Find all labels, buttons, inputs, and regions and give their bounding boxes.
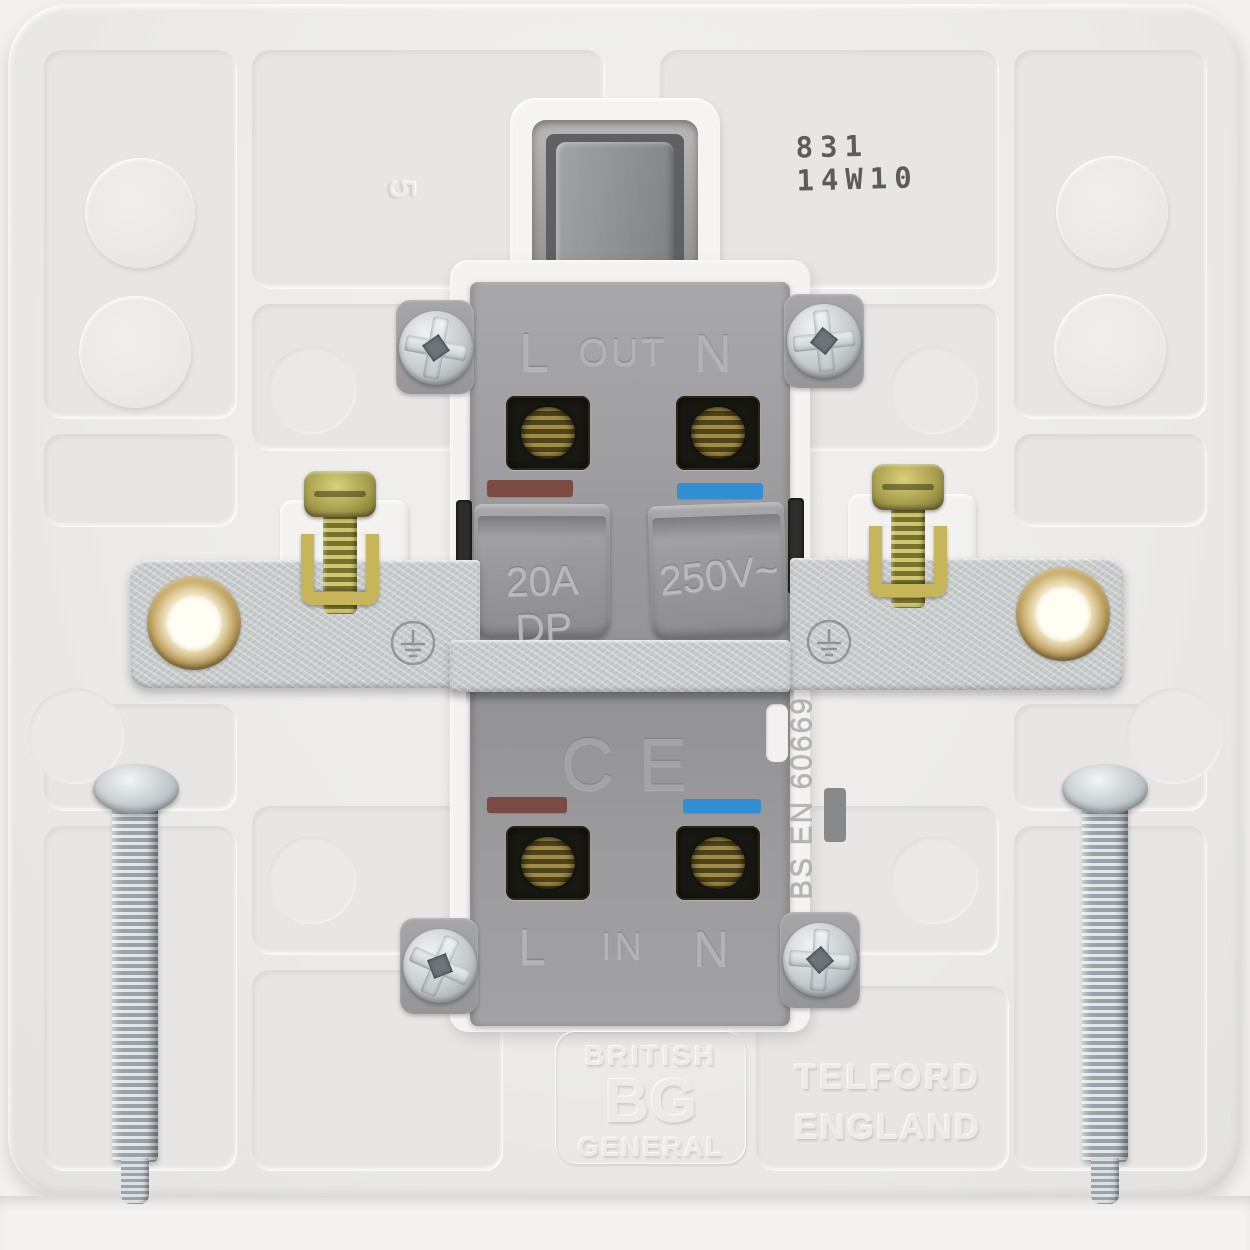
batch-stamp-line1: 831 — [795, 128, 918, 164]
terminal-label-neutral-in: N — [682, 920, 740, 978]
brass-insert-hole — [1016, 567, 1110, 661]
terminal-screw-icon — [691, 837, 745, 889]
terminal-label-in: IN — [588, 926, 658, 969]
mounting-yoke-center-bar — [450, 640, 790, 692]
live-marker-brown — [487, 797, 567, 813]
molded-panel-left-band — [44, 434, 236, 526]
earth-symbol-stamp-icon — [390, 620, 436, 666]
terminal-window — [676, 396, 760, 470]
terminal-screw-icon — [521, 837, 575, 889]
brand-emblem: BRITISH BG GENERAL — [556, 1032, 746, 1164]
earth-clamp — [301, 534, 379, 605]
terminal-label-live-out: L — [506, 322, 562, 384]
screw-boss-circle — [1056, 156, 1168, 268]
neutral-marker-blue — [683, 799, 761, 813]
fixing-screw-tip — [1091, 1158, 1119, 1204]
terminal-label-out: OUT — [576, 332, 670, 375]
phillips-screw-icon — [403, 929, 477, 1003]
flat-circle-mark — [1126, 688, 1222, 784]
phillips-screw-icon — [783, 923, 857, 997]
flat-circle-mark — [268, 346, 356, 434]
screw-boss-circle — [79, 296, 191, 408]
brand-initials: BG — [556, 1072, 746, 1132]
fixing-hole — [166, 595, 222, 651]
screw-boss-circle — [85, 158, 195, 268]
product-photo: 5 831 14W10 L OUT N 20A DP 250V~ — [0, 0, 1250, 1250]
ce-mark: CE — [556, 722, 716, 807]
fixing-screw-shank — [1082, 800, 1128, 1162]
molded-panel-right-band — [1014, 434, 1206, 526]
fixing-screw-tip — [121, 1158, 149, 1204]
terminal-screw-icon — [521, 407, 575, 459]
terminal-label-neutral-out: N — [684, 324, 742, 384]
standard-label: BS EN 60669 — [786, 688, 826, 908]
batch-stamp: 831 14W10 — [795, 128, 919, 197]
live-marker-brown — [487, 480, 573, 497]
earth-clamp — [869, 526, 947, 597]
flat-circle-mark — [890, 836, 978, 924]
origin-emboss: TELFORD ENGLAND — [788, 1058, 988, 1148]
terminal-window — [506, 396, 590, 470]
origin-line2: ENGLAND — [788, 1108, 988, 1148]
terminal-window — [506, 826, 590, 900]
flat-circle-mark — [268, 836, 356, 924]
terminal-label-live-in: L — [504, 918, 560, 976]
origin-line1: TELFORD — [788, 1058, 988, 1098]
mechanism-side-pocket — [766, 704, 788, 762]
brass-insert-hole — [147, 576, 241, 670]
phillips-screw-icon — [787, 304, 861, 378]
terminal-window — [676, 826, 760, 900]
earth-screw-head — [304, 471, 376, 517]
mould-cavity-number: 5 — [381, 179, 423, 199]
fixing-screw-shank — [112, 800, 158, 1162]
fixing-screw-head — [1062, 764, 1148, 814]
earth-screw-head — [872, 464, 944, 510]
neutral-marker-blue — [677, 483, 763, 499]
background-surface — [0, 1196, 1250, 1250]
phillips-screw-icon — [399, 311, 473, 385]
flat-circle-mark — [890, 346, 978, 434]
batch-stamp-line2: 14W10 — [796, 161, 919, 197]
fixing-hole — [1035, 586, 1091, 642]
earth-symbol-stamp-icon — [806, 619, 852, 665]
screw-boss-circle — [1054, 294, 1166, 406]
fixing-screw-head — [93, 764, 179, 814]
mechanism-side-tab — [824, 788, 846, 842]
terminal-screw-icon — [691, 407, 745, 459]
brand-line2: GENERAL — [556, 1132, 746, 1163]
